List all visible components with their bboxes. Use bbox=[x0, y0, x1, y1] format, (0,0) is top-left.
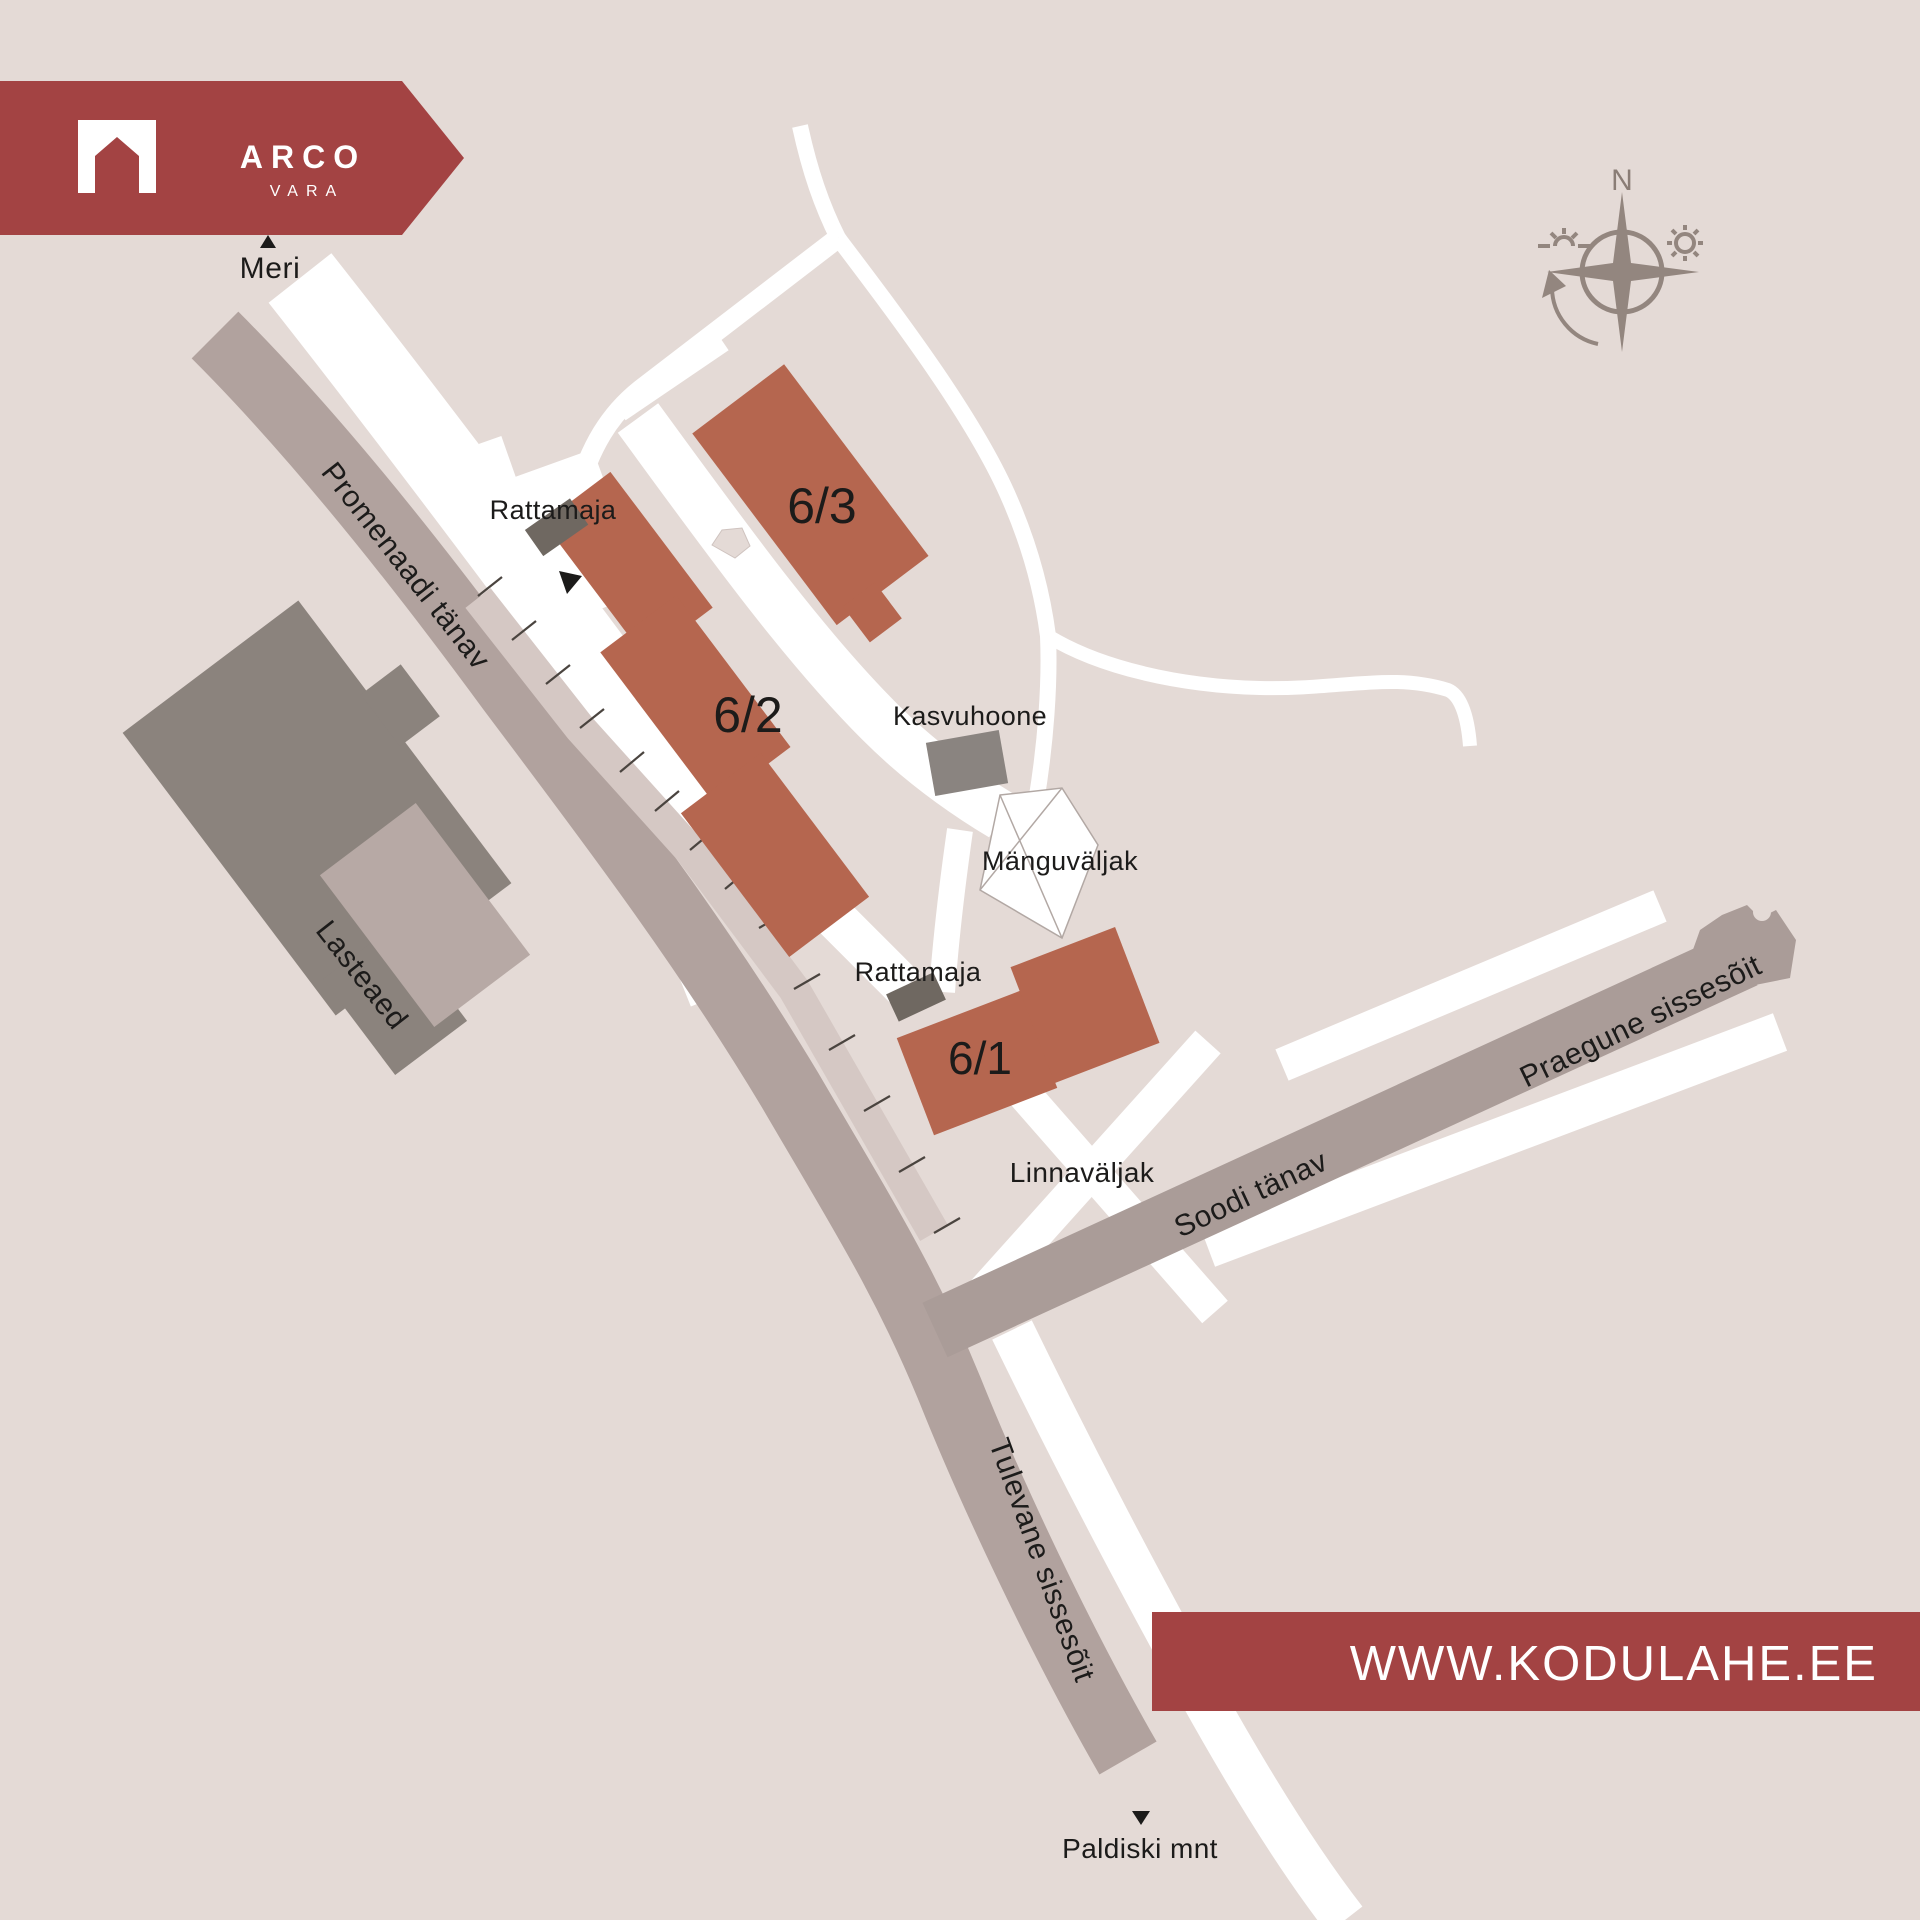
street-tip-notch bbox=[1753, 903, 1771, 921]
rattamaja-bottom-label: Rattamaja bbox=[855, 957, 982, 987]
website-banner: WWW.KODULAHE.EE bbox=[1152, 1612, 1920, 1711]
brand-name: ARCO bbox=[240, 139, 366, 175]
kasvuhoone-label: Kasvuhoone bbox=[893, 701, 1047, 731]
arco-logo-icon bbox=[78, 120, 156, 193]
map-canvas: Meri Promenaadi tänav Rattamaja 6/3 6/2 … bbox=[0, 0, 1920, 1920]
paldiski-label: Paldiski mnt bbox=[1062, 1833, 1218, 1864]
website-url: WWW.KODULAHE.EE bbox=[1350, 1637, 1878, 1691]
linnavaljak-label: Linnaväljak bbox=[1010, 1157, 1155, 1188]
site-plan-map: Meri Promenaadi tänav Rattamaja 6/3 6/2 … bbox=[0, 0, 1920, 1920]
logo-banner-shape bbox=[0, 81, 464, 235]
building-6-2-label: 6/2 bbox=[713, 687, 783, 743]
meri-label: Meri bbox=[240, 252, 301, 285]
manguvaljak-label: Mänguväljak bbox=[982, 846, 1138, 876]
brand-subname: VARA bbox=[270, 183, 344, 200]
building-6-1-label: 6/1 bbox=[948, 1032, 1012, 1084]
north-label: N bbox=[1611, 164, 1633, 197]
building-6-3-label: 6/3 bbox=[787, 478, 857, 534]
logo-banner: ARCO VARA bbox=[0, 81, 464, 235]
rattamaja-top-label: Rattamaja bbox=[490, 495, 617, 525]
